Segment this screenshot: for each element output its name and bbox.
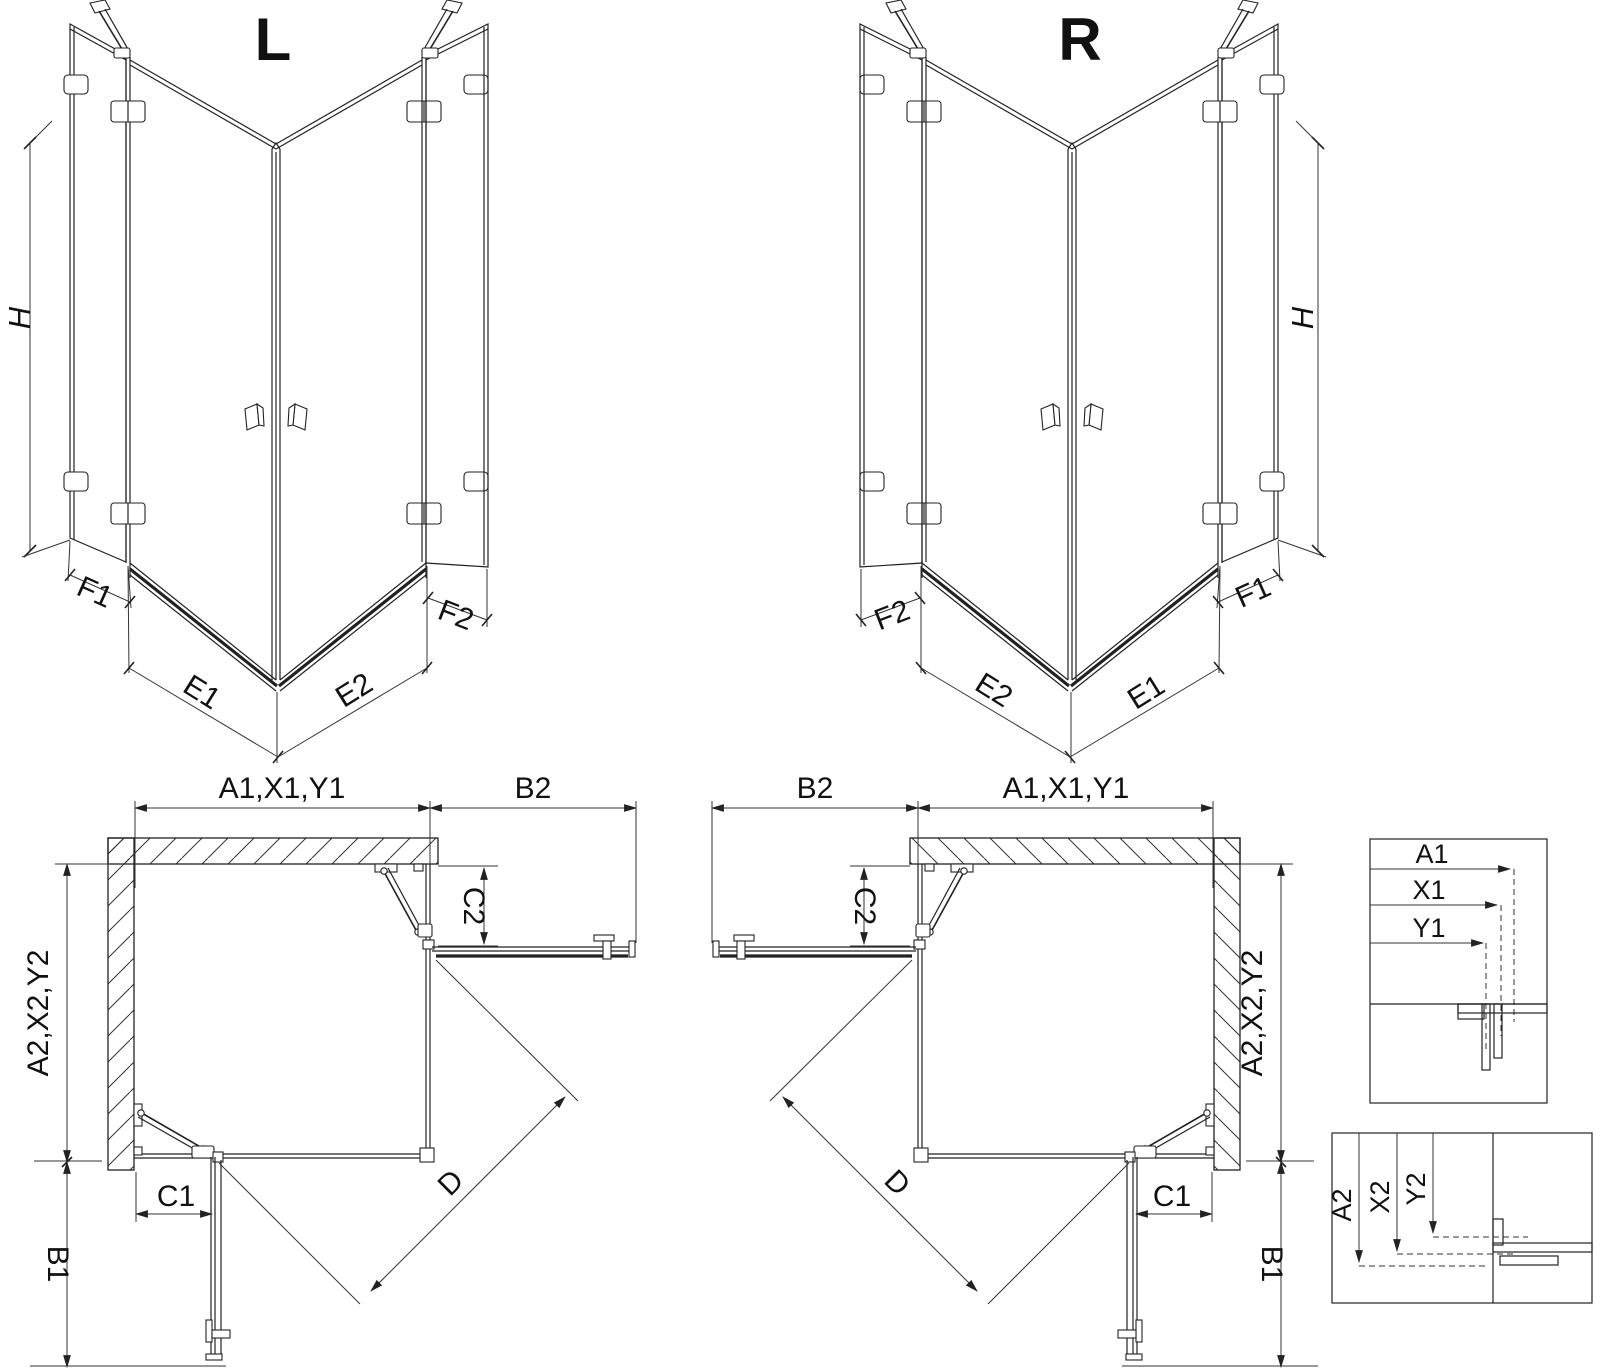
dim-label-f2: F2	[434, 594, 479, 637]
perspective-view-right	[856, 0, 1326, 763]
dim-label-f1: F1	[1230, 570, 1275, 614]
detail-label-a1: A1	[1415, 839, 1448, 869]
dim-label-c2: C2	[848, 887, 881, 925]
dim-label-e2: E2	[330, 667, 379, 714]
plan-view-left	[30, 801, 636, 1367]
dim-label-e2: E2	[969, 667, 1018, 714]
dim-label-d: D	[878, 1164, 917, 1203]
variant-label-right: R	[1058, 6, 1101, 73]
dim-label-e1: E1	[177, 669, 226, 716]
dim-label-d: D	[432, 1164, 471, 1203]
wall-profile-section	[1458, 1004, 1547, 1070]
dim-label-b2: B2	[515, 772, 552, 805]
dim-label-height: H	[2, 306, 37, 329]
detail-view-depth	[1332, 1133, 1592, 1303]
detail-label-y1: Y1	[1412, 913, 1445, 943]
detail-label-y2: Y2	[1401, 1172, 1431, 1205]
dim-label-f2: F2	[870, 594, 915, 637]
detail-label-a2: A2	[1327, 1188, 1357, 1221]
dim-label-side-depth: A2,X2,Y2	[1236, 950, 1269, 1077]
technical-drawing-canvas: L H F1 E1 E2 F2 R H F2 E2 E1 F1 A1,X1,Y1…	[0, 0, 1600, 1372]
dim-label-b1: B1	[41, 1246, 74, 1283]
variant-label-left: L	[255, 6, 292, 73]
dim-label-side-depth: A2,X2,Y2	[22, 950, 55, 1077]
dim-label-c1: C1	[157, 1180, 195, 1213]
dim-label-f1: F1	[72, 570, 117, 614]
shower-enclosure-diagram: L H F1 E1 E2 F2 R H F2 E2 E1 F1 A1,X1,Y1…	[0, 0, 1600, 1372]
dim-label-c1: C1	[1153, 1180, 1191, 1213]
dim-label-c2: C2	[457, 887, 490, 925]
detail-view-width	[1370, 839, 1547, 1103]
detail-label-x1: X1	[1412, 875, 1445, 905]
wall-profile-section	[1493, 1219, 1592, 1265]
plan-view-right	[712, 801, 1318, 1367]
dim-label-e1: E1	[1122, 669, 1171, 716]
dim-label-height: H	[1285, 306, 1320, 329]
detail-label-x2: X2	[1365, 1180, 1395, 1213]
dim-label-b2: B2	[797, 772, 834, 805]
dim-label-b1: B1	[1255, 1246, 1288, 1283]
dim-label-top-width: A1,X1,Y1	[219, 772, 346, 805]
perspective-view-left	[22, 0, 492, 763]
dim-label-top-width: A1,X1,Y1	[1003, 772, 1130, 805]
